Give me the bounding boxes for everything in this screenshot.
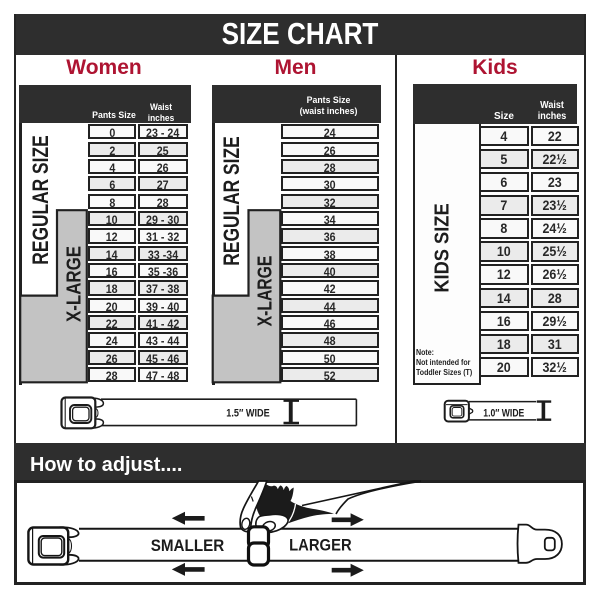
svg-text:1.5″ WIDE: 1.5″ WIDE: [226, 408, 270, 420]
svg-text:1.0″ WIDE: 1.0″ WIDE: [483, 407, 524, 419]
svg-text:LARGER: LARGER: [289, 537, 352, 555]
svg-text:SMALLER: SMALLER: [151, 537, 225, 555]
